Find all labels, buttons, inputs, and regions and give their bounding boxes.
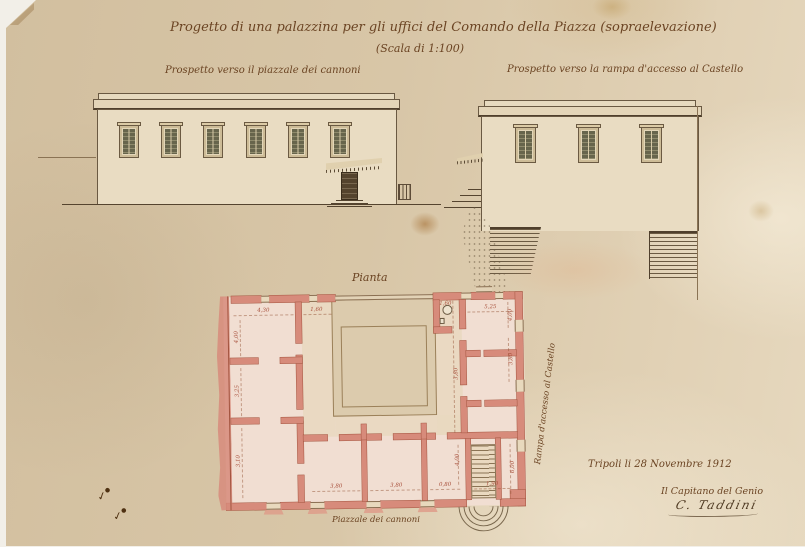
stair-wall xyxy=(495,438,501,499)
dimension-label: 3,80 xyxy=(453,359,459,389)
wall-segment xyxy=(324,501,366,509)
square-annotation: Piazzale dei cannoni xyxy=(332,515,420,525)
paper-stain xyxy=(748,200,774,222)
elevation-window xyxy=(516,128,535,162)
window-lintel xyxy=(117,122,141,126)
right-edge-line xyxy=(697,106,698,300)
signature-name: C. Taddini xyxy=(674,498,759,512)
wall-segment xyxy=(317,295,335,302)
side-step xyxy=(452,201,481,202)
wall-segment xyxy=(380,500,420,508)
partition xyxy=(231,418,259,424)
dimension-label: 3,80 xyxy=(316,483,356,490)
window-shutters xyxy=(165,129,177,154)
threshold xyxy=(364,508,384,513)
partition xyxy=(361,424,366,440)
courtyard-inner-border xyxy=(341,325,428,407)
door-opening xyxy=(366,501,380,508)
ground-line xyxy=(62,204,441,205)
entrance-step xyxy=(327,206,372,207)
window-opening xyxy=(516,440,525,452)
elevation-window xyxy=(204,126,222,157)
side-step xyxy=(468,189,481,190)
wall-segment xyxy=(447,432,517,439)
threshold xyxy=(418,507,438,512)
wall-segment xyxy=(516,332,524,380)
window-opening xyxy=(515,320,524,332)
wc-sink xyxy=(440,318,445,324)
entry-arc xyxy=(459,506,509,532)
dimension-label: 6,00 xyxy=(510,452,516,482)
elevation-window xyxy=(120,126,138,157)
dimension-label: 4,00 xyxy=(507,300,513,330)
ground-mark-left xyxy=(38,157,96,158)
plan-title: Pianta xyxy=(352,271,388,284)
threshold xyxy=(308,509,328,514)
partition xyxy=(421,439,427,500)
partition xyxy=(485,400,517,407)
wall-segment xyxy=(471,292,495,299)
door-opening xyxy=(310,502,324,509)
wall-segment xyxy=(303,435,327,441)
corridor-left xyxy=(301,300,335,437)
partition-stub xyxy=(467,400,481,406)
door-opening xyxy=(420,500,434,507)
signature-role: Il Capitano del Genio xyxy=(661,486,763,497)
staircase xyxy=(471,444,497,498)
window-lintel xyxy=(159,122,183,126)
window-opening xyxy=(461,293,471,300)
drawing-sheet: Progetto di una palazzina per gli uffici… xyxy=(0,0,805,547)
window-shutters xyxy=(334,129,346,154)
entrance-step xyxy=(336,200,363,201)
elevation-window xyxy=(331,126,349,157)
window-opening xyxy=(309,295,317,302)
dimension-label: 3,80 xyxy=(376,482,416,489)
elevation-window xyxy=(289,126,307,157)
elevation-window xyxy=(162,126,180,157)
elevation-window xyxy=(642,128,661,162)
floor-plan: 4,30 1,60 4,00 3,25 3,10 1,60 5,25 4,00 … xyxy=(209,283,545,538)
ink-stain xyxy=(410,212,440,236)
window-shutters xyxy=(519,131,532,159)
dimension-label: 4,30 xyxy=(243,307,283,314)
wall-segment xyxy=(296,355,303,409)
wall-segment xyxy=(515,292,522,320)
partition xyxy=(421,423,426,439)
elevation-window xyxy=(247,126,265,157)
window-opening xyxy=(516,380,525,392)
wall-segment xyxy=(500,499,525,506)
partition xyxy=(230,358,258,364)
window-shutters xyxy=(207,129,219,154)
elevation-window xyxy=(579,128,598,162)
window-lintel xyxy=(244,122,268,126)
wall-segment xyxy=(459,300,465,329)
window-lintel xyxy=(328,122,352,126)
dimension-label: 3,10 xyxy=(236,446,242,476)
dimension-label: 1,90 xyxy=(478,481,506,487)
wall-segment xyxy=(280,502,310,509)
side-step xyxy=(460,195,481,196)
door-opening xyxy=(266,503,280,510)
window-shutters xyxy=(292,129,304,154)
dimension-label: 3,25 xyxy=(234,376,240,406)
ramp-flight-right xyxy=(649,231,697,279)
partition-stub xyxy=(280,357,302,363)
wall-segment xyxy=(393,433,435,440)
scale-note: (Scala di 1:100) xyxy=(330,42,510,55)
wall-segment xyxy=(298,475,304,502)
dimension-label: 3,80 xyxy=(508,344,514,374)
wall-segment xyxy=(433,293,461,300)
partition-stub xyxy=(466,350,480,356)
window-lintel xyxy=(639,124,664,128)
wall-segment xyxy=(460,341,467,385)
wall-segment xyxy=(517,392,525,440)
partition-stub xyxy=(281,417,303,423)
elevation-right-label: Prospetto verso la rampa d'accesso al Ca… xyxy=(507,64,743,75)
window-opening xyxy=(261,296,269,303)
partition xyxy=(361,440,367,501)
threshold xyxy=(264,509,284,514)
window-shutters xyxy=(250,129,262,154)
window-shutters xyxy=(582,131,595,159)
porch-step xyxy=(476,286,492,292)
wall-segment xyxy=(231,296,261,303)
toilet-wall xyxy=(434,327,452,333)
window-shutters xyxy=(645,131,658,159)
dimension-label: 5,25 xyxy=(471,304,509,311)
garden-gate xyxy=(398,184,411,200)
dimension-label: 4,00 xyxy=(455,445,461,475)
dimension-label: 1,60 xyxy=(435,301,455,307)
entrance-door xyxy=(341,172,358,200)
dimension-label: 0,80 xyxy=(428,482,462,489)
window-opening xyxy=(495,292,503,299)
window-lintel xyxy=(201,122,225,126)
place-date: Tripoli li 28 Novembre 1912 xyxy=(588,459,732,470)
sheet-title: Progetto di una palazzina per gli uffici… xyxy=(170,20,670,35)
wall-segment xyxy=(269,295,309,303)
elevation-left-label: Prospetto verso il piazzale dei cannoni xyxy=(165,65,361,76)
window-shutters xyxy=(123,129,135,154)
wall-segment xyxy=(297,421,304,463)
window-lintel xyxy=(576,124,601,128)
window-lintel xyxy=(513,124,538,128)
dimension-label: 1,60 xyxy=(301,307,331,313)
dimension-label: 4,00 xyxy=(234,322,240,352)
window-lintel xyxy=(286,122,310,126)
